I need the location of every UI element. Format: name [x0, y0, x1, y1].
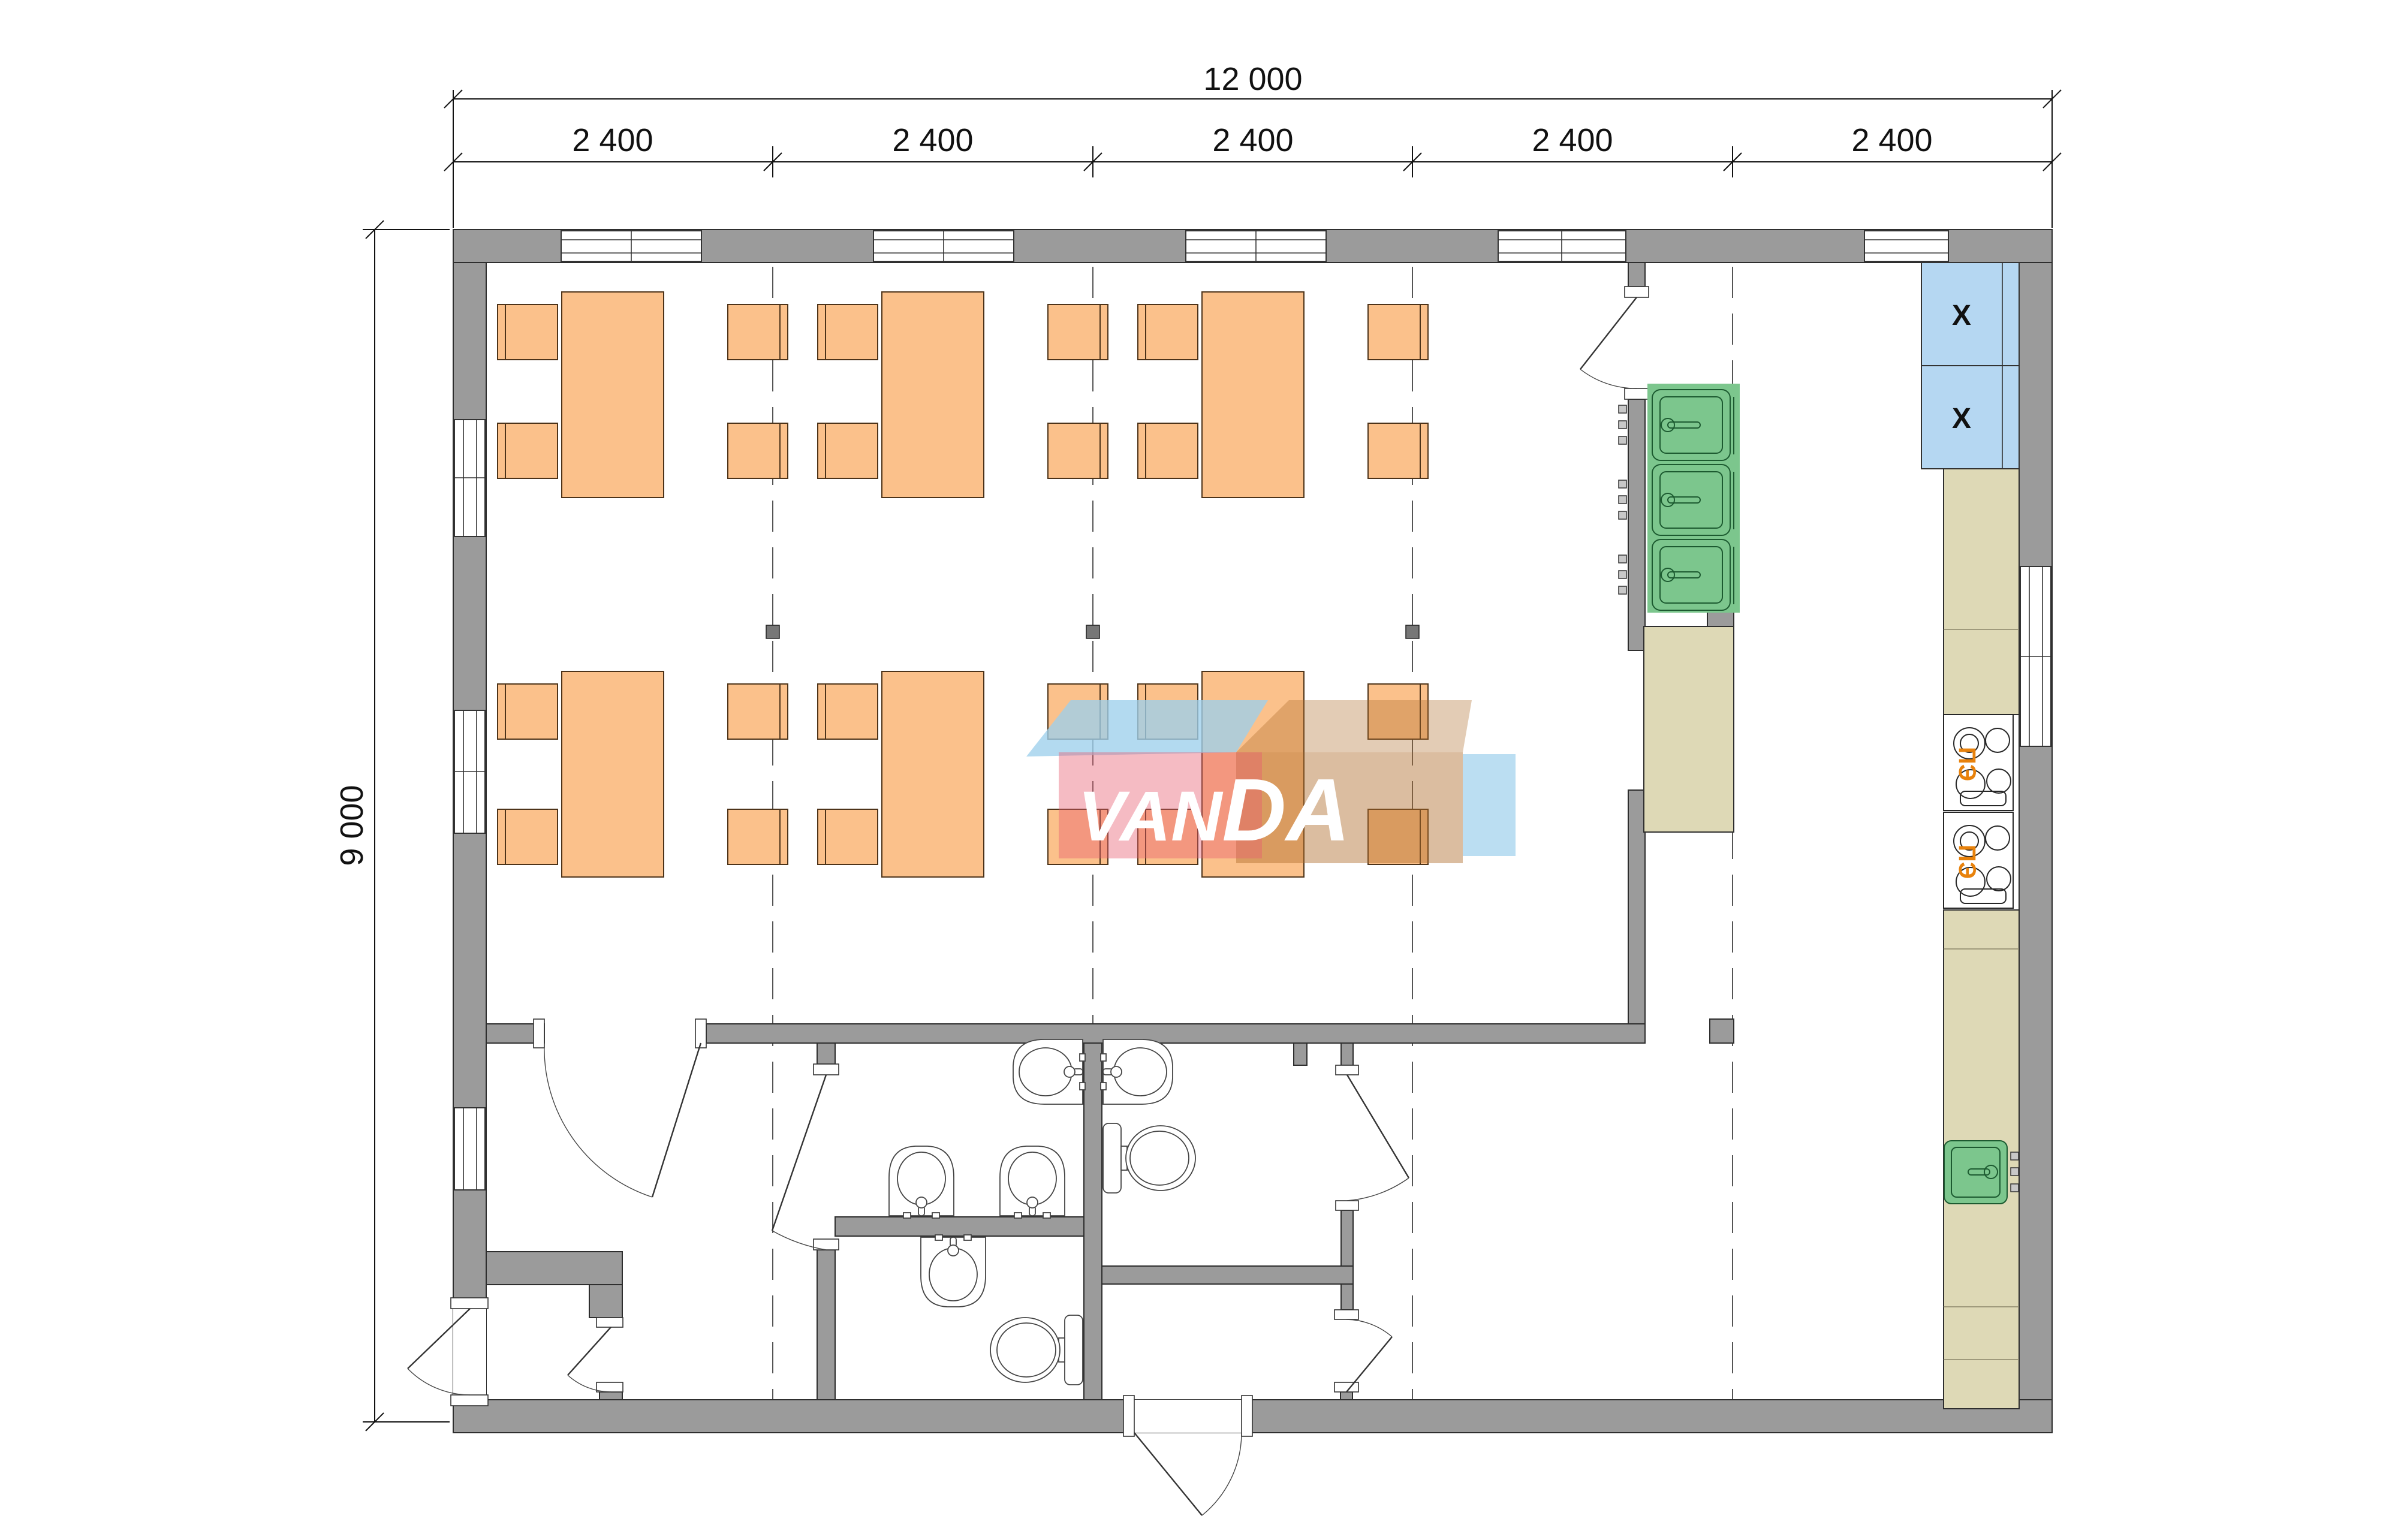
- dimension-overall-height: 9 000: [334, 221, 384, 1431]
- chair: [498, 809, 558, 864]
- kitchen-wall: [1628, 263, 1645, 287]
- table: [562, 671, 664, 877]
- vestibule-wall: [589, 1285, 622, 1318]
- washbasin-icon: [921, 1235, 986, 1307]
- window: [454, 710, 485, 833]
- dim-bay-label: 2 400: [1532, 122, 1613, 158]
- vestibule-wall: [599, 1392, 622, 1400]
- window: [1864, 231, 1948, 261]
- chair: [818, 809, 878, 864]
- chair: [818, 423, 878, 478]
- entrance-opening: [1134, 1400, 1242, 1433]
- kitchen-wall: [1628, 790, 1645, 1024]
- exterior-wall-right: [2019, 263, 2052, 1400]
- floor-plan-canvas: 12 000 2 400 2 400 2 400 2 400 2 400 9 0…: [0, 0, 2398, 1540]
- door: [534, 1019, 706, 1197]
- stove-label: ПЭ: [1954, 747, 1980, 781]
- sink-icon: [1652, 465, 1730, 535]
- floor-plan-drawing: 12 000 2 400 2 400 2 400 2 400 2 400 9 0…: [0, 0, 2398, 1540]
- dim-bay-label: 2 400: [1212, 122, 1293, 158]
- sink-icon: [1652, 540, 1730, 610]
- kitchen-wall: [1628, 399, 1645, 650]
- dim-total-height-label: 9 000: [334, 785, 370, 866]
- chair: [1138, 305, 1198, 360]
- chair: [818, 305, 878, 360]
- window: [1498, 231, 1626, 261]
- watermark-box-flap: [1463, 754, 1516, 856]
- toilet-icon: [1103, 1123, 1195, 1193]
- interior-wall: [1341, 1210, 1353, 1266]
- window: [561, 231, 701, 261]
- chair: [728, 423, 788, 478]
- crossed-out-icon: X: [1952, 300, 1971, 331]
- door-opening: [453, 1309, 486, 1395]
- column: [1710, 1019, 1734, 1043]
- table: [1202, 292, 1304, 498]
- table-set: [498, 292, 788, 498]
- sanitary-fixtures: [889, 1039, 1195, 1385]
- door: [772, 1064, 839, 1250]
- window: [454, 1108, 485, 1190]
- chair: [728, 305, 788, 360]
- interior-wall: [1341, 1284, 1353, 1310]
- dim-bay-label: 2 400: [1851, 122, 1932, 158]
- serving-counter: [1644, 626, 1734, 832]
- chair: [1138, 423, 1198, 478]
- washbasin-icon: [1101, 1039, 1173, 1104]
- washbasin-icon: [889, 1146, 954, 1218]
- kitchen-area: X X ПЭ ПЭ: [1619, 263, 2019, 1409]
- door: [1334, 1310, 1392, 1392]
- table: [882, 292, 984, 498]
- chair: [1048, 423, 1108, 478]
- interior-wall: [817, 1043, 835, 1064]
- chair: [728, 809, 788, 864]
- vestibule-wall: [486, 1252, 622, 1285]
- interior-wall: [1340, 1392, 1352, 1400]
- interior-wall: [1294, 1043, 1307, 1065]
- chair: [498, 423, 558, 478]
- dim-total-width-label: 12 000: [1203, 61, 1302, 97]
- chair: [818, 684, 878, 739]
- chair: [498, 305, 558, 360]
- column-markers: [766, 625, 1419, 638]
- interior-wall: [1102, 1266, 1353, 1284]
- chair: [1368, 423, 1428, 478]
- dim-bay-label: 2 400: [572, 122, 653, 158]
- interior-wall: [835, 1217, 1093, 1236]
- stove-label: ПЭ: [1954, 845, 1980, 879]
- sink-icon: [1652, 390, 1730, 460]
- service-connections: [1619, 405, 1626, 594]
- dim-bay-label: 2 400: [892, 122, 973, 158]
- door: [568, 1318, 623, 1392]
- table: [562, 292, 664, 498]
- toilet-icon: [990, 1315, 1083, 1385]
- chair: [1368, 305, 1428, 360]
- washbasin-icon: [1013, 1039, 1085, 1104]
- table-set: [498, 671, 788, 877]
- table-set: [818, 292, 1108, 498]
- door: [1580, 287, 1649, 399]
- table: [882, 671, 984, 877]
- window: [1186, 231, 1326, 261]
- dimension-overall-width: 12 000: [444, 61, 2061, 108]
- door: [1336, 1065, 1409, 1210]
- window: [873, 231, 1014, 261]
- interior-wall: [1341, 1043, 1353, 1065]
- interior-wall: [817, 1250, 835, 1400]
- washbasin-icon: [1000, 1146, 1065, 1218]
- chair: [728, 684, 788, 739]
- watermark-text-right: DA: [1222, 761, 1350, 860]
- watermark-text-left: VAN: [1078, 777, 1224, 856]
- column-marker: [1406, 625, 1419, 638]
- table-set: [1138, 292, 1428, 498]
- chair: [1048, 305, 1108, 360]
- column-marker: [1086, 625, 1099, 638]
- column-marker: [766, 625, 779, 638]
- sink-icon: [1944, 1141, 2007, 1204]
- service-connections: [2011, 1152, 2019, 1192]
- dimension-bays: 2 400 2 400 2 400 2 400 2 400: [444, 122, 2061, 177]
- interior-wall: [1084, 1043, 1102, 1400]
- interior-wall: [706, 1024, 1645, 1043]
- chair: [498, 684, 558, 739]
- crossed-out-icon: X: [1952, 403, 1971, 435]
- counter: [1944, 469, 2019, 715]
- watermark-logo: VANDA: [1026, 700, 1516, 863]
- window: [454, 420, 485, 537]
- window: [2020, 566, 2051, 746]
